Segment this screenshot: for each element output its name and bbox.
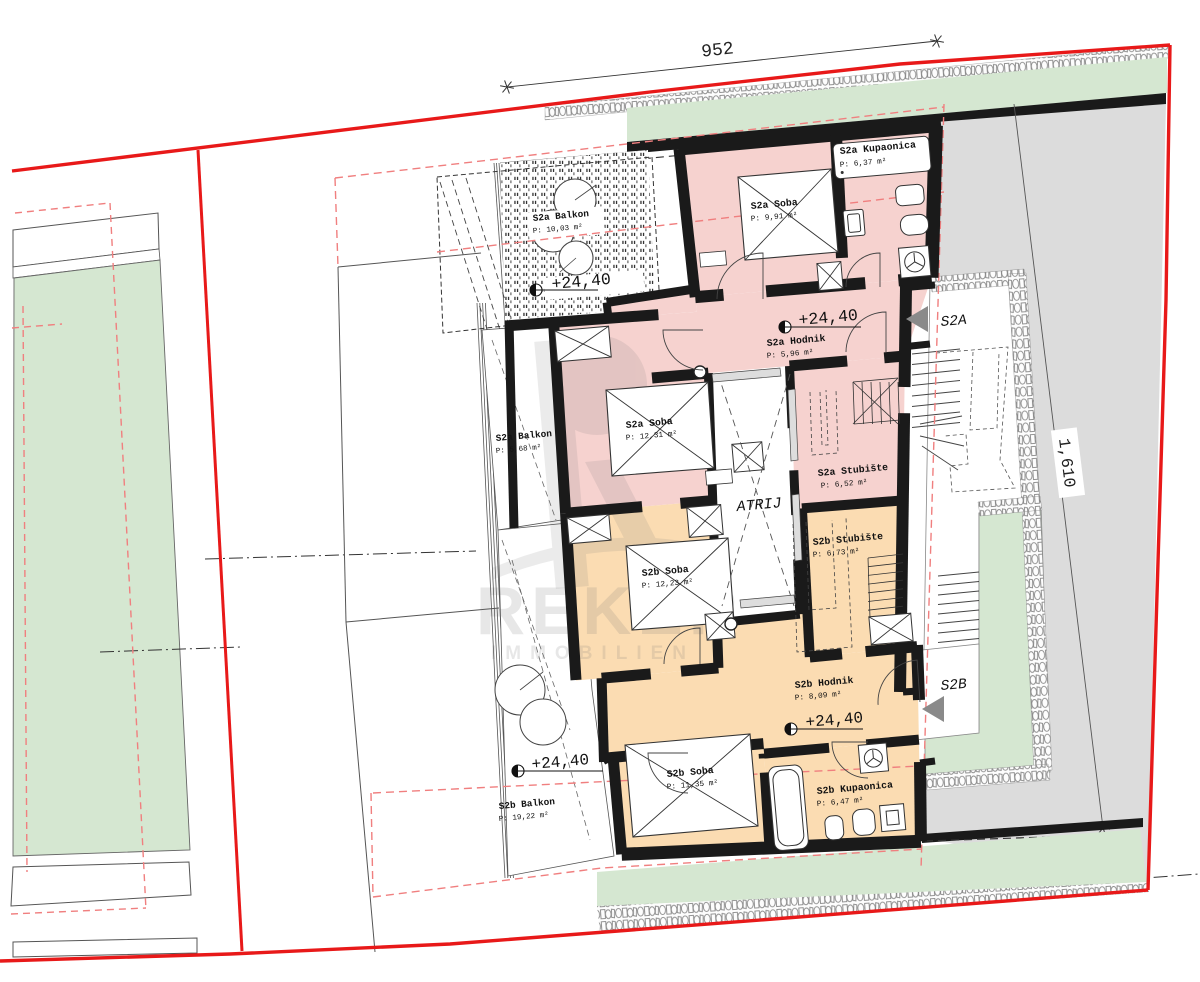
svg-text:952: 952	[700, 39, 734, 62]
svg-text:S2A: S2A	[940, 313, 967, 331]
svg-text:S2B: S2B	[940, 677, 968, 695]
